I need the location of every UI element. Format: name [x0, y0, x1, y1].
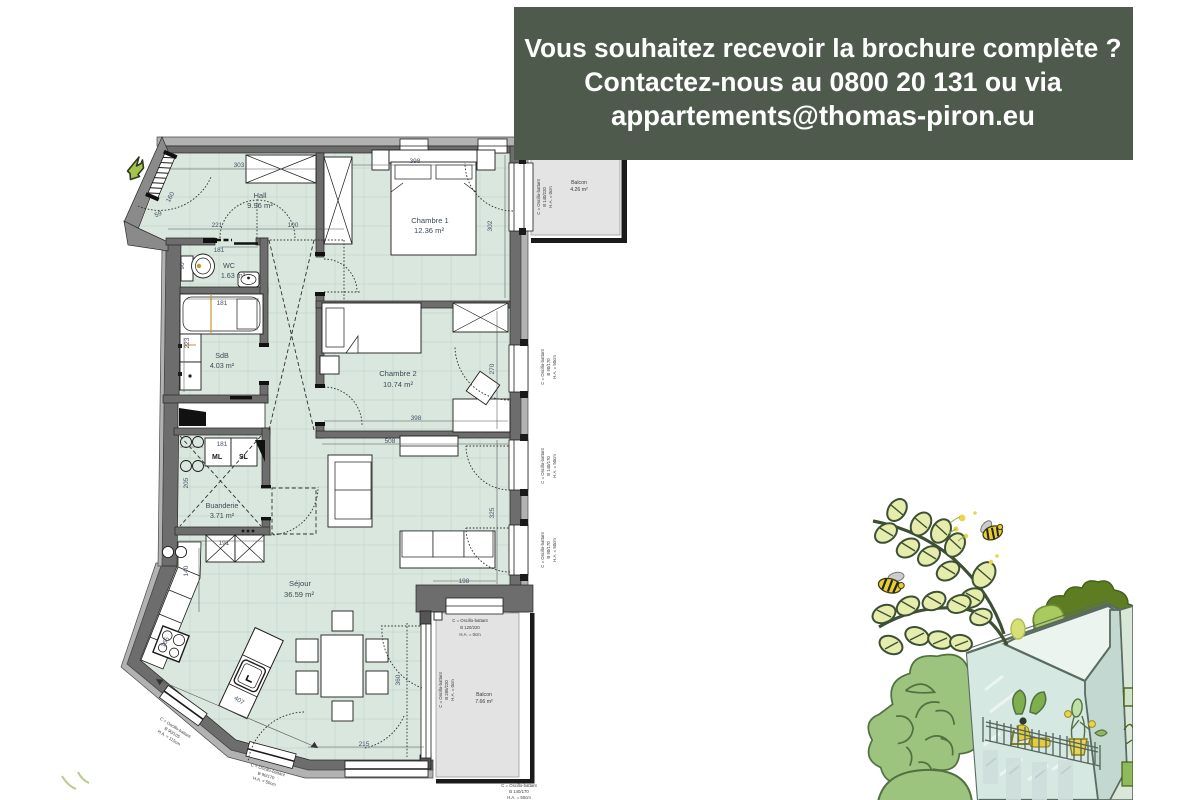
svg-text:181: 181 [214, 247, 225, 254]
svg-text:C = Oscillo-battant: C = Oscillo-battant [438, 671, 443, 707]
svg-text:H.A. = 0cm: H.A. = 0cm [450, 679, 455, 701]
svg-text:181: 181 [217, 441, 228, 448]
svg-text:B 285/220: B 285/220 [444, 680, 449, 700]
svg-text:B 90/170: B 90/170 [546, 358, 551, 376]
svg-text:221: 221 [212, 222, 223, 229]
svg-text:10.74 m²: 10.74 m² [383, 380, 413, 389]
svg-text:C = Oscillo-battant: C = Oscillo-battant [540, 447, 545, 483]
svg-text:90: 90 [179, 262, 186, 270]
svg-text:H.A. = 50cm: H.A. = 50cm [552, 538, 557, 562]
svg-text:H.A. = 0cm: H.A. = 0cm [548, 186, 553, 208]
svg-text:Balcon: Balcon [476, 692, 492, 698]
svg-text:Séjour: Séjour [289, 579, 311, 588]
svg-text:H.A. = 50cm: H.A. = 50cm [552, 454, 557, 478]
svg-text:1.63 m²: 1.63 m² [221, 271, 246, 280]
svg-text:SdB: SdB [215, 351, 229, 360]
svg-text:C = Oscillo-battant: C = Oscillo-battant [540, 531, 545, 567]
svg-text:7.66 m²: 7.66 m² [475, 699, 493, 705]
svg-text:appartements@thomas-piron.eu: appartements@thomas-piron.eu [611, 100, 1035, 131]
svg-text:B 120/220: B 120/220 [460, 625, 480, 630]
svg-text:Chambre 2: Chambre 2 [379, 369, 417, 378]
svg-text:9.96 m²: 9.96 m² [247, 201, 273, 210]
svg-text:B 140/220: B 140/220 [542, 187, 547, 207]
svg-text:C = Oscillo-battant: C = Oscillo-battant [501, 783, 537, 788]
svg-text:215: 215 [359, 741, 370, 748]
svg-text:SL: SL [239, 454, 249, 461]
svg-text:191: 191 [219, 540, 230, 547]
svg-text:181: 181 [217, 300, 228, 307]
svg-text:C = Oscillo-battant: C = Oscillo-battant [540, 348, 545, 384]
svg-text:36.59 m²: 36.59 m² [284, 590, 314, 599]
svg-text:4.03 m²: 4.03 m² [210, 361, 235, 370]
svg-text:12.36 m²: 12.36 m² [414, 226, 444, 235]
svg-text:C = Oscillo-battant: C = Oscillo-battant [452, 618, 488, 623]
svg-text:B 140/170: B 140/170 [546, 456, 551, 476]
svg-text:3.71 m²: 3.71 m² [210, 511, 235, 520]
svg-text:H.A. = 50cm: H.A. = 50cm [507, 795, 531, 800]
svg-text:H.A. = 0cm: H.A. = 0cm [459, 632, 481, 637]
svg-text:C = Oscillo-battant: C = Oscillo-battant [536, 178, 541, 214]
svg-text:223: 223 [184, 337, 191, 348]
svg-text:398: 398 [410, 158, 421, 165]
svg-text:100: 100 [288, 222, 299, 229]
svg-text:B 90/170: B 90/170 [546, 541, 551, 559]
svg-text:360: 360 [395, 674, 402, 685]
svg-text:270: 270 [489, 363, 496, 374]
svg-text:WC: WC [223, 261, 235, 270]
svg-text:508: 508 [385, 438, 396, 445]
svg-text:4.26 m²: 4.26 m² [570, 187, 588, 193]
svg-text:303: 303 [234, 162, 245, 169]
svg-text:302: 302 [487, 220, 494, 231]
svg-text:198: 198 [459, 578, 470, 585]
svg-text:205: 205 [183, 477, 190, 488]
svg-text:B 140/170: B 140/170 [509, 789, 529, 794]
svg-text:398: 398 [411, 415, 422, 422]
svg-text:H.A. = 50cm: H.A. = 50cm [552, 355, 557, 379]
svg-text:Balcon: Balcon [571, 180, 587, 186]
svg-text:Contactez-nous au 0800 20 131: Contactez-nous au 0800 20 131 ou via [584, 67, 1062, 97]
svg-text:Chambre 1: Chambre 1 [411, 216, 449, 225]
svg-text:ML: ML [212, 454, 223, 461]
svg-text:Vous souhaitez recevoir la bro: Vous souhaitez recevoir la brochure comp… [524, 33, 1121, 63]
svg-text:Hall: Hall [253, 191, 266, 200]
svg-text:325: 325 [489, 507, 496, 518]
svg-text:Buanderie: Buanderie [206, 501, 239, 510]
svg-text:140: 140 [183, 565, 190, 576]
